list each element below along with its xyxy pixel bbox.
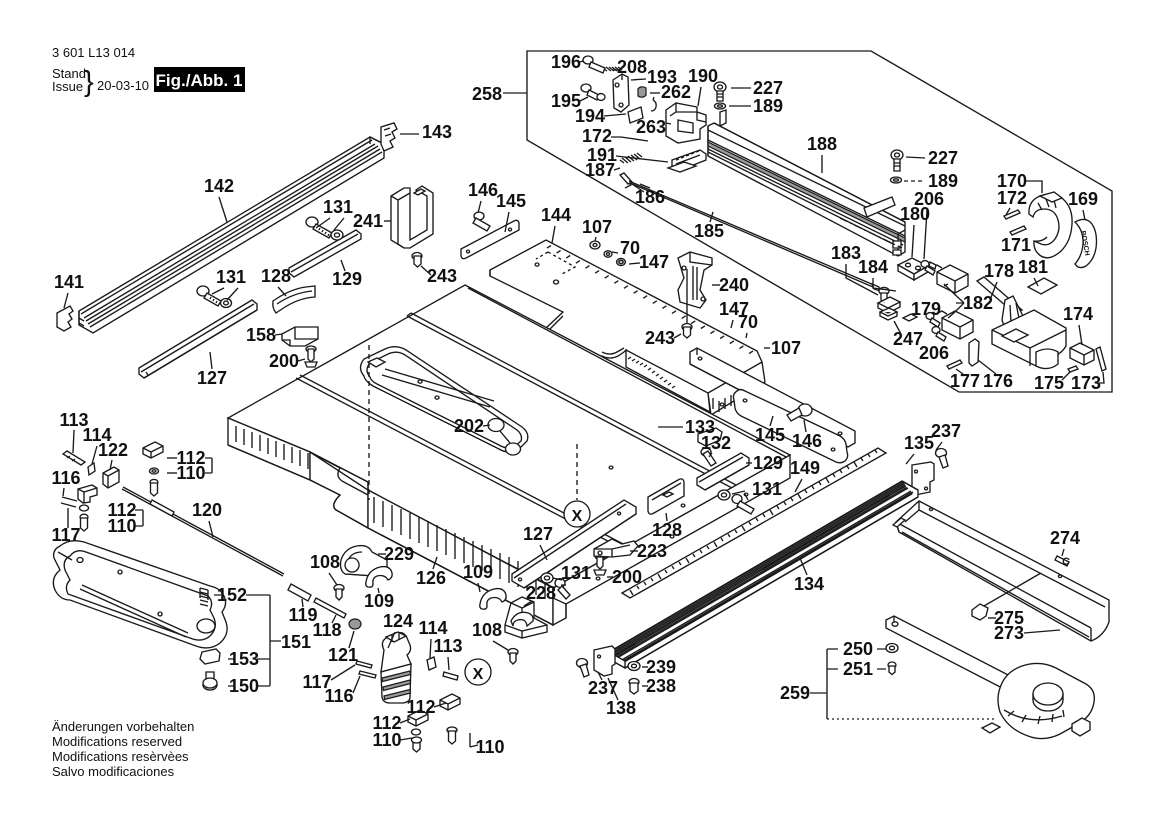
svg-text:182: 182 bbox=[963, 293, 993, 313]
svg-text:237: 237 bbox=[931, 421, 961, 441]
svg-text:184: 184 bbox=[858, 257, 888, 277]
svg-text:200: 200 bbox=[269, 351, 299, 371]
svg-text:178: 178 bbox=[984, 261, 1014, 281]
svg-text:129: 129 bbox=[332, 269, 362, 289]
svg-text:273: 273 bbox=[994, 623, 1024, 643]
svg-text:263: 263 bbox=[636, 117, 666, 137]
svg-text:241: 241 bbox=[353, 211, 383, 231]
svg-text:180: 180 bbox=[900, 204, 930, 224]
svg-text:Salvo modificaciones: Salvo modificaciones bbox=[52, 764, 175, 779]
svg-text:238: 238 bbox=[646, 676, 676, 696]
svg-text:118: 118 bbox=[312, 620, 341, 640]
svg-text:227: 227 bbox=[928, 148, 958, 168]
svg-text:183: 183 bbox=[831, 243, 861, 263]
svg-text:243: 243 bbox=[645, 328, 675, 348]
svg-text:150: 150 bbox=[229, 676, 259, 696]
svg-text:187: 187 bbox=[585, 160, 615, 180]
svg-text:}: } bbox=[84, 66, 94, 98]
svg-text:147: 147 bbox=[639, 252, 669, 272]
svg-text:172: 172 bbox=[582, 126, 612, 146]
svg-text:Fig./Abb. 1: Fig./Abb. 1 bbox=[156, 71, 243, 90]
svg-text:152: 152 bbox=[217, 585, 247, 605]
svg-text:110: 110 bbox=[176, 463, 205, 483]
svg-text:251: 251 bbox=[843, 659, 873, 679]
svg-text:121: 121 bbox=[328, 645, 358, 665]
svg-text:237: 237 bbox=[588, 678, 618, 698]
svg-text:146: 146 bbox=[792, 431, 822, 451]
svg-text:243: 243 bbox=[427, 266, 457, 286]
svg-text:120: 120 bbox=[192, 500, 222, 520]
svg-text:158: 158 bbox=[246, 325, 276, 345]
svg-text:189: 189 bbox=[753, 96, 783, 116]
svg-text:262: 262 bbox=[661, 82, 691, 102]
svg-text:107: 107 bbox=[771, 338, 801, 358]
svg-text:132: 132 bbox=[701, 433, 731, 453]
svg-text:128: 128 bbox=[261, 266, 291, 286]
svg-text:112: 112 bbox=[406, 697, 435, 717]
svg-text:20-03-10: 20-03-10 bbox=[97, 78, 149, 93]
svg-text:149: 149 bbox=[790, 458, 820, 478]
svg-text:122: 122 bbox=[98, 440, 128, 460]
svg-text:108: 108 bbox=[310, 552, 340, 572]
svg-text:124: 124 bbox=[383, 611, 413, 631]
svg-text:X: X bbox=[572, 508, 583, 525]
svg-text:208: 208 bbox=[617, 57, 647, 77]
svg-text:138: 138 bbox=[606, 698, 636, 718]
svg-text:126: 126 bbox=[416, 568, 446, 588]
svg-text:176: 176 bbox=[983, 371, 1013, 391]
svg-text:117: 117 bbox=[51, 525, 80, 545]
svg-text:131: 131 bbox=[561, 563, 591, 583]
svg-text:188: 188 bbox=[807, 134, 837, 154]
svg-text:186: 186 bbox=[635, 187, 665, 207]
svg-text:229: 229 bbox=[384, 544, 414, 564]
svg-text:131: 131 bbox=[216, 267, 246, 287]
svg-text:70: 70 bbox=[620, 238, 640, 258]
svg-text:174: 174 bbox=[1063, 304, 1093, 324]
svg-text:143: 143 bbox=[422, 122, 452, 142]
svg-text:Änderungen vorbehalten: Änderungen vorbehalten bbox=[52, 719, 194, 734]
svg-text:110: 110 bbox=[107, 516, 136, 536]
svg-text:228: 228 bbox=[526, 583, 556, 603]
svg-text:108: 108 bbox=[472, 620, 502, 640]
svg-text:179: 179 bbox=[911, 299, 941, 319]
svg-text:70: 70 bbox=[738, 312, 758, 332]
svg-text:116: 116 bbox=[324, 686, 353, 706]
svg-text:227: 227 bbox=[753, 78, 783, 98]
svg-text:240: 240 bbox=[719, 275, 749, 295]
svg-text:X: X bbox=[473, 666, 484, 683]
svg-text:Issue: Issue bbox=[52, 79, 83, 94]
svg-text:194: 194 bbox=[575, 106, 605, 126]
svg-text:169: 169 bbox=[1068, 189, 1098, 209]
svg-text:131: 131 bbox=[752, 479, 782, 499]
svg-text:172: 172 bbox=[997, 188, 1027, 208]
svg-text:190: 190 bbox=[688, 66, 718, 86]
svg-text:110: 110 bbox=[475, 737, 504, 757]
svg-text:250: 250 bbox=[843, 639, 873, 659]
svg-text:113: 113 bbox=[433, 636, 462, 656]
svg-text:109: 109 bbox=[364, 591, 394, 611]
svg-text:196: 196 bbox=[551, 52, 581, 72]
svg-text:131: 131 bbox=[323, 197, 353, 217]
svg-text:145: 145 bbox=[496, 191, 526, 211]
svg-text:127: 127 bbox=[197, 368, 227, 388]
svg-text:258: 258 bbox=[472, 84, 502, 104]
svg-text:239: 239 bbox=[646, 657, 676, 677]
svg-text:202: 202 bbox=[454, 416, 484, 436]
svg-text:189: 189 bbox=[928, 171, 958, 191]
svg-text:259: 259 bbox=[780, 683, 810, 703]
svg-text:3 601 L13 014: 3 601 L13 014 bbox=[52, 45, 135, 60]
svg-text:Modifications reserved: Modifications reserved bbox=[52, 734, 182, 749]
svg-text:144: 144 bbox=[541, 205, 571, 225]
svg-text:171: 171 bbox=[1001, 235, 1031, 255]
svg-text:127: 127 bbox=[523, 524, 553, 544]
svg-text:109: 109 bbox=[463, 562, 493, 582]
svg-text:Modifications resèrvèes: Modifications resèrvèes bbox=[52, 749, 189, 764]
svg-text:114: 114 bbox=[418, 618, 447, 638]
svg-text:142: 142 bbox=[204, 176, 234, 196]
svg-text:177: 177 bbox=[950, 371, 980, 391]
svg-text:206: 206 bbox=[919, 343, 949, 363]
svg-text:145: 145 bbox=[755, 425, 785, 445]
svg-text:128: 128 bbox=[652, 520, 682, 540]
svg-text:107: 107 bbox=[582, 217, 612, 237]
svg-text:141: 141 bbox=[54, 272, 84, 292]
svg-text:274: 274 bbox=[1050, 528, 1080, 548]
svg-text:185: 185 bbox=[694, 221, 724, 241]
svg-text:146: 146 bbox=[468, 180, 498, 200]
svg-text:153: 153 bbox=[229, 649, 259, 669]
svg-text:110: 110 bbox=[372, 730, 401, 750]
svg-text:135: 135 bbox=[904, 433, 934, 453]
svg-text:223: 223 bbox=[637, 541, 667, 561]
svg-text:173: 173 bbox=[1071, 373, 1101, 393]
svg-text:129: 129 bbox=[753, 453, 783, 473]
svg-text:134: 134 bbox=[794, 574, 824, 594]
svg-text:200: 200 bbox=[612, 567, 642, 587]
svg-text:181: 181 bbox=[1018, 257, 1048, 277]
svg-text:175: 175 bbox=[1034, 373, 1064, 393]
svg-text:116: 116 bbox=[51, 468, 80, 488]
svg-text:151: 151 bbox=[281, 632, 311, 652]
